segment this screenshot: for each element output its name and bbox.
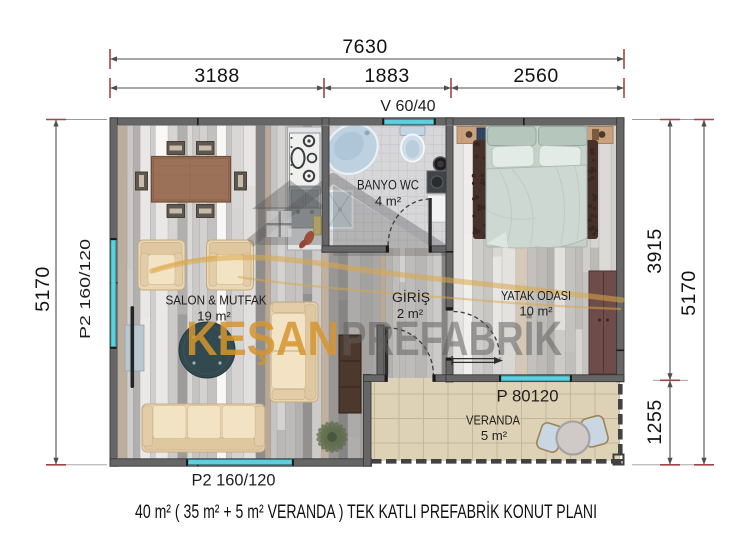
svg-text:5170: 5170: [678, 270, 700, 315]
svg-text:3188: 3188: [194, 65, 239, 87]
svg-text:PREFABRİK: PREFABRİK: [341, 312, 562, 366]
svg-text:10 m²: 10 m²: [519, 304, 553, 319]
svg-text:3915: 3915: [644, 228, 666, 273]
svg-text:P2 160/120: P2 160/120: [78, 239, 94, 339]
svg-text:GİRİŞ: GİRİŞ: [392, 290, 430, 305]
svg-text:2560: 2560: [513, 65, 558, 87]
svg-text:2 m²: 2 m²: [397, 306, 424, 321]
svg-text:P 80120: P 80120: [497, 387, 559, 406]
svg-text:19 m²: 19 m²: [197, 309, 231, 324]
svg-text:SALON & MUTFAK: SALON & MUTFAK: [166, 293, 267, 308]
svg-text:VERANDA: VERANDA: [466, 413, 520, 428]
svg-text:7630: 7630: [342, 36, 387, 58]
svg-text:4 m²: 4 m²: [375, 194, 402, 209]
svg-text:5170: 5170: [32, 266, 54, 311]
svg-text:P2 160/120: P2 160/120: [192, 471, 276, 490]
svg-text:1883: 1883: [364, 65, 409, 87]
svg-text:YATAK ODASI: YATAK ODASI: [501, 288, 571, 303]
svg-text:1255: 1255: [644, 399, 666, 444]
svg-text:V 60/40: V 60/40: [380, 98, 435, 115]
svg-text:40 m² ( 35 m² + 5 m² VERANDA: 40 m² ( 35 m² + 5 m² VERANDA ) TEK KATLI…: [135, 502, 597, 523]
svg-text:5 m²: 5 m²: [481, 428, 508, 443]
svg-text:BANYO WC: BANYO WC: [357, 178, 419, 193]
